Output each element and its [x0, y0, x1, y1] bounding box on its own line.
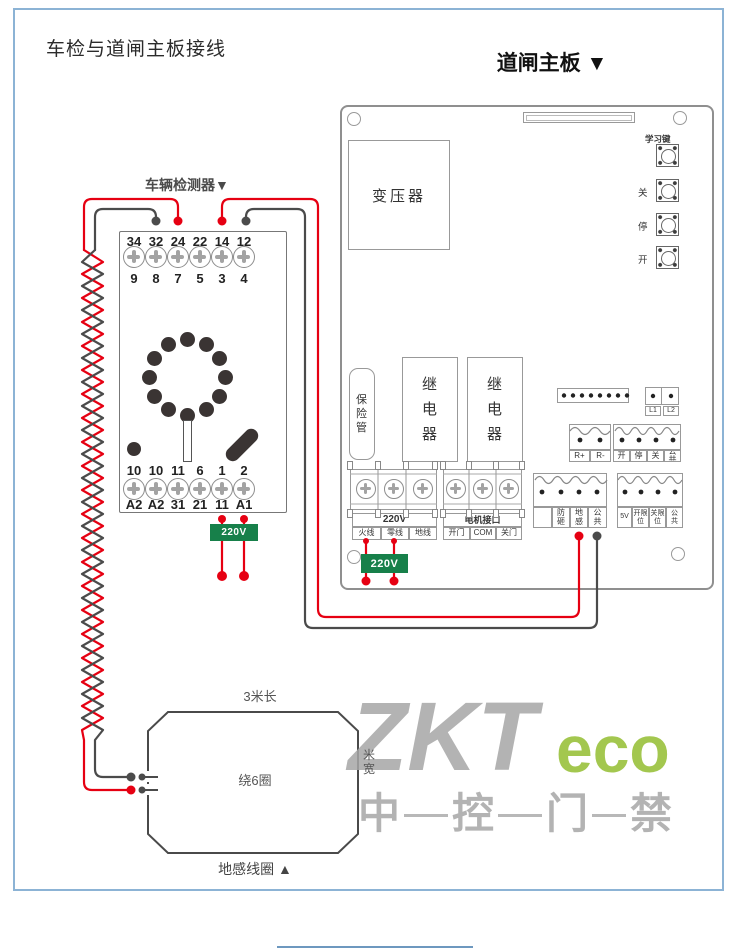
motor-open-cell: 开门 [443, 527, 470, 540]
open-button [656, 246, 679, 269]
l1l2-divider [661, 387, 662, 405]
detector-bottom-pin: A2 [123, 497, 145, 512]
close-button-label: 关 [638, 185, 648, 199]
sensor-common-cell: 公共 [588, 507, 607, 528]
detector-top-pin: 4 [233, 271, 255, 286]
r-plus-cell: R+ [569, 450, 590, 462]
board-title: 道闸主板 ▼ [462, 47, 642, 77]
detector-bottom-number: 1 [211, 463, 233, 478]
board-hole [673, 111, 687, 125]
limit-common-cell: 公共 [666, 507, 683, 528]
diagram-page: 车检与道闸主板接线 道闸主板 ▼ 车辆检测器▼ 变压器 学习键 关 停 开 保险… [0, 0, 750, 951]
open-button-label: 开 [638, 252, 648, 266]
detector-bottom-number: 2 [233, 463, 255, 478]
fuse-label: 保险管 [356, 393, 368, 435]
watermark-cn: 中 [358, 793, 400, 835]
relay-1: 继电器 [402, 357, 458, 462]
detector-bottom-pin: 11 [211, 497, 233, 512]
learn-button [656, 144, 679, 167]
motor-screw [473, 479, 493, 499]
r-minus-cell: R- [590, 450, 611, 462]
limit-connector [617, 473, 683, 507]
motor-title-cell: 电机接口 [443, 513, 522, 527]
limit-5v-cell: 5V [617, 507, 632, 528]
board-top-slot [523, 112, 635, 123]
watermark-eco: eco [556, 716, 670, 782]
fuse: 保险管 [349, 368, 375, 460]
detector-bottom-number: 6 [189, 463, 211, 478]
detector-top-pin: 5 [189, 271, 211, 286]
coil-length-label: 3米长 [210, 686, 310, 705]
coil-caption: 地感线圈 ▲ [185, 859, 325, 879]
detector-screw [211, 246, 233, 268]
detector-top-pin: 9 [123, 271, 145, 286]
transformer: 变压器 [348, 140, 450, 250]
next-image-border [277, 946, 473, 951]
watermark-line [404, 814, 448, 817]
power-screw [413, 479, 433, 499]
ctrl-open-cell: 开 [613, 450, 630, 462]
ctrl-close-cell: 关 [647, 450, 664, 462]
detector-screw [233, 246, 255, 268]
motor-com-cell: COM [470, 527, 496, 540]
detector-bottom-pin: 31 [167, 497, 189, 512]
power-title-cell: 220V [352, 513, 437, 527]
ctrl-common-cell: 公共 [664, 450, 681, 462]
rs485-connector [569, 424, 611, 450]
power-screw [356, 479, 376, 499]
power-live-cell: 火线 [352, 527, 381, 540]
motor-close-cell: 关门 [496, 527, 522, 540]
motor-screw [499, 479, 519, 499]
sensor-blank-cell [533, 507, 552, 528]
detector-220v-badge: 220V [210, 524, 258, 541]
page-title: 车检与道闸主板接线 [46, 34, 226, 61]
detector-screw [123, 246, 145, 268]
relay-2: 继电器 [467, 357, 523, 462]
power-neutral-cell: 零线 [381, 527, 409, 540]
close-button [656, 179, 679, 202]
detector-top-pin: 8 [145, 271, 167, 286]
detector-bottom-number: 11 [167, 463, 189, 478]
stop-button [656, 213, 679, 236]
watermark-line [498, 814, 542, 817]
relay-2-label: 继电器 [487, 372, 503, 447]
l1l2-connector [645, 387, 679, 405]
detector-bottom-pin: 21 [189, 497, 211, 512]
watermark-cn: 禁 [630, 793, 672, 835]
watermark-zkt: ZKT [348, 688, 537, 785]
board-hole [347, 550, 361, 564]
detector-bottom-pin: A1 [233, 497, 255, 512]
control-connector [613, 424, 681, 450]
detector-bottom-pin: A2 [145, 497, 167, 512]
sensor-connector [533, 473, 607, 507]
watermark-cn: 门 [546, 793, 588, 835]
board-hole [671, 547, 685, 561]
detector-screw [145, 246, 167, 268]
coil-width-label: 米宽 [363, 748, 376, 776]
relay-1-label: 继电器 [422, 372, 438, 447]
detector-slot [183, 420, 192, 462]
power-screw [384, 479, 404, 499]
watermark-line [592, 814, 626, 817]
l1-label-cell: L1 [645, 406, 661, 416]
sensor-antismash-cell: 防砸 [552, 507, 570, 528]
detector-led-dot [127, 442, 141, 456]
detector-screw [189, 246, 211, 268]
sensor-loop-cell: 地感 [570, 507, 588, 528]
watermark-cn: 控 [452, 793, 494, 835]
detector-top-pin: 7 [167, 271, 189, 286]
limit-open-cell: 开限位 [632, 507, 649, 528]
detector-title: 车辆检测器▼ [145, 175, 229, 195]
detector-bottom-number: 10 [145, 463, 167, 478]
transformer-label: 变压器 [349, 185, 449, 206]
power-ground-cell: 地线 [409, 527, 437, 540]
board-hole [347, 112, 361, 126]
detector-screw [167, 246, 189, 268]
detector-bottom-number: 10 [123, 463, 145, 478]
header-8pin [557, 388, 629, 403]
stop-button-label: 停 [638, 219, 648, 233]
detector-dial-dots [149, 339, 225, 415]
board-220v-badge: 220V [361, 554, 408, 573]
ctrl-stop-cell: 停 [630, 450, 647, 462]
motor-screw [446, 479, 466, 499]
l2-label-cell: L2 [663, 406, 679, 416]
detector-top-pin: 3 [211, 271, 233, 286]
limit-close-cell: 关限位 [649, 507, 666, 528]
coil-turns-label: 绕6圈 [205, 770, 305, 789]
